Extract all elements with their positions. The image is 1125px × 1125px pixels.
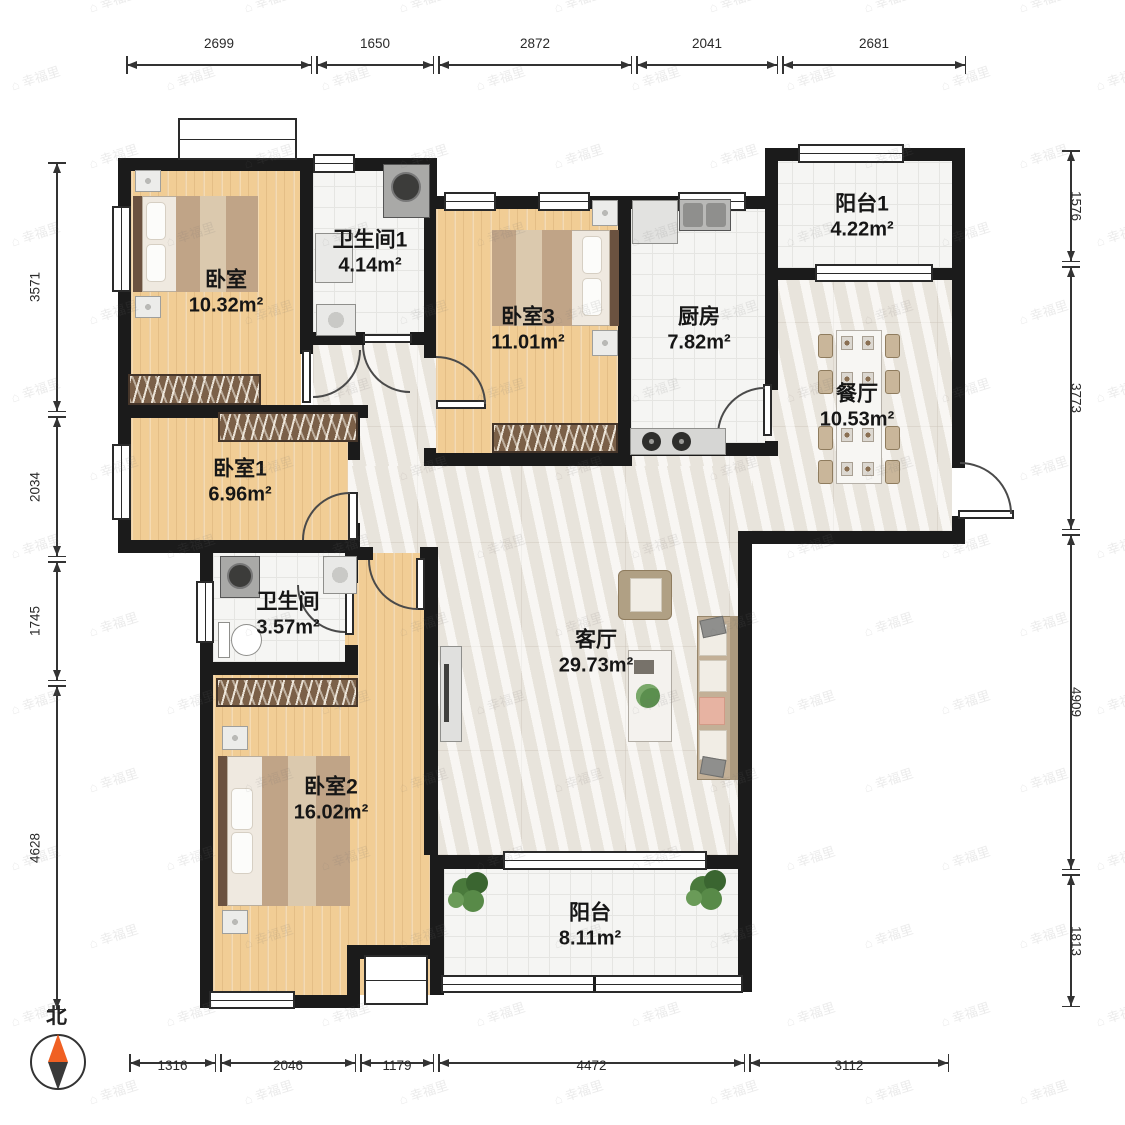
watermark-text: ⌂ 幸福里 [706,0,760,16]
sliding-door-balcony [503,851,707,870]
dimension-value: 2681 [859,36,889,51]
watermark-text: ⌂ 幸福里 [938,997,992,1031]
bed-headboard [133,196,142,292]
room-area: 8.11m² [559,927,621,952]
room-label-bedroom2: 卧室2 16.02m² [294,774,369,825]
armchair-cushion [630,578,662,612]
watermark-text: ⌂ 幸福里 [86,919,140,953]
dimension-left-2: 1745 [48,561,66,681]
wardrobe [216,678,358,707]
dimension-value: 4628 [28,832,43,862]
room-name: 厨房 [667,304,730,330]
room-area: 6.96m² [208,483,271,508]
watermark-text: ⌂ 幸福里 [783,841,837,875]
dimension-bottom-3: 4472 [438,1054,745,1072]
pillow [146,202,166,240]
window [112,206,131,292]
wall [738,531,752,992]
watermark-text: ⌂ 幸福里 [8,61,62,95]
room-name: 餐厅 [820,381,895,407]
dimension-top-0: 2699 [126,56,312,74]
watermark-text: ⌂ 幸福里 [1093,373,1125,407]
dimension-top-4: 2681 [782,56,966,74]
room-name: 卧室1 [208,456,271,482]
room-area: 29.73m² [559,654,634,679]
window [313,154,355,173]
watermark-text: ⌂ 幸福里 [938,841,992,875]
wall [618,196,631,466]
watermark-text: ⌂ 幸福里 [861,1075,915,1109]
dimension-right-1: 3773 [1062,266,1080,530]
bathroom1-door-leaf [363,334,412,343]
watermark-text: ⌂ 幸福里 [86,607,140,641]
watermark-text: ⌂ 幸福里 [861,607,915,641]
window [798,144,904,163]
wardrobe [218,412,358,442]
watermark-text: ⌂ 幸福里 [783,685,837,719]
toilet-tank [218,622,230,658]
wall [424,209,436,358]
nightstand [592,330,618,356]
room-name: 阳台 [559,900,621,926]
room-label-bedroom1: 卧室1 6.96m² [208,456,271,507]
wall [424,453,632,466]
window [538,192,590,211]
wardrobe [492,423,618,453]
dimension-value: 3571 [28,272,43,302]
pillow [231,832,253,874]
book [634,660,654,674]
room-label-balcony: 阳台 8.11m² [559,900,621,951]
watermark-text: ⌂ 幸福里 [706,139,760,173]
watermark-text: ⌂ 幸福里 [86,0,140,16]
wall [738,531,965,544]
dimension-value: 2034 [28,471,43,501]
dimension-bottom-0: 1316 [129,1054,216,1072]
room-area: 10.53m² [820,408,895,433]
pillow [582,278,602,316]
place-setting [862,462,874,476]
room-label-bedroom: 卧室 10.32m² [189,267,264,318]
room-name: 阳台1 [830,191,893,217]
watermark-text: ⌂ 幸福里 [1093,685,1125,719]
room-label-kitchen: 厨房 7.82m² [667,304,730,355]
room-label-balcony1: 阳台1 4.22m² [830,191,893,242]
dining-chair [818,334,833,358]
sliding-door-balcony1 [815,264,933,282]
dimension-right-2: 4909 [1062,534,1080,870]
room-label-living: 客厅 29.73m² [559,627,634,678]
bay-window [178,118,297,160]
dimension-value: 1813 [1069,925,1084,955]
dimension-value: 1316 [157,1058,187,1073]
bedroom-door-leaf [302,350,311,403]
pillow [146,244,166,282]
bed-headboard [610,230,619,326]
dimension-value: 2872 [520,36,550,51]
entry-door-arc [960,462,1012,514]
watermark-text: ⌂ 幸福里 [628,997,682,1031]
watermark-text: ⌂ 幸福里 [1093,61,1125,95]
watermark-text: ⌂ 幸福里 [396,0,450,16]
floor-plan: 卧室 10.32m² 卫生间1 4.14m² 卧室3 11.01m² 厨房 7.… [0,0,1125,1125]
room-name: 卧室3 [491,304,564,330]
watermark-text: ⌂ 幸福里 [1093,529,1125,563]
wall [430,855,444,995]
watermark-text: ⌂ 幸福里 [706,1075,760,1109]
room-area: 16.02m² [294,801,369,826]
bed-headboard [218,756,227,906]
dimension-bottom-1: 2046 [220,1054,356,1072]
sink [316,304,356,336]
watermark-text: ⌂ 幸福里 [86,763,140,797]
watermark-text: ⌂ 幸福里 [938,685,992,719]
sink-basin [706,203,726,227]
washing-machine-drum [391,172,421,202]
wall [765,441,778,456]
room-area: 7.82m² [667,331,730,356]
watermark-text: ⌂ 幸福里 [241,0,295,16]
dining-chair [885,334,900,358]
wall [355,547,373,560]
sofa-cushion [699,660,727,692]
nightstand [222,910,248,934]
dimension-value: 4909 [1069,687,1084,717]
dimension-value: 4472 [576,1058,606,1073]
dimension-top-1: 1650 [316,56,434,74]
window [209,991,295,1009]
room-area: 4.22m² [830,218,893,243]
dimension-value: 1179 [382,1058,411,1073]
dining-chair [818,460,833,484]
balcony-railing [441,975,743,993]
wall [347,945,360,1008]
plant [448,870,492,914]
watermark-text: ⌂ 幸福里 [396,1075,450,1109]
window [112,444,131,520]
nightstand [592,200,618,226]
room-area: 3.57m² [256,616,319,641]
dimension-value: 2041 [692,36,722,51]
plant [686,868,730,912]
room-area: 10.32m² [189,294,264,319]
watermark-text: ⌂ 幸福里 [241,1075,295,1109]
pillow [231,788,253,830]
stove-burner [642,432,661,451]
room-name: 卧室 [189,267,264,293]
dimension-value: 2699 [204,36,234,51]
nightstand [135,296,161,318]
watermark-text: ⌂ 幸福里 [1016,1075,1070,1109]
room-label-bathroom: 卫生间 3.57m² [256,589,319,640]
watermark-text: ⌂ 幸福里 [86,1075,140,1109]
dimension-bottom-4: 3112 [749,1054,949,1072]
nightstand [135,170,161,192]
watermark-text: ⌂ 幸福里 [1093,217,1125,251]
dimension-bottom-2: 1179 [360,1054,434,1072]
place-setting [862,336,874,350]
watermark-text: ⌂ 幸福里 [551,0,605,16]
washing-machine-drum [227,563,253,589]
room-label-bedroom3: 卧室3 11.01m² [491,304,564,355]
watermark-text: ⌂ 幸福里 [783,997,837,1031]
room-name: 卧室2 [294,774,369,800]
watermark-text: ⌂ 幸福里 [1093,997,1125,1031]
wall [952,148,965,468]
sofa-pillow-gray [700,756,727,778]
stove-burner [672,432,691,451]
wall [765,148,778,278]
watermark-text: ⌂ 幸福里 [861,0,915,16]
room-area: 11.01m² [491,331,564,356]
watermark-text: ⌂ 幸福里 [473,997,527,1031]
sofa-pillow-pink [699,697,725,725]
tv [444,664,449,722]
room-name: 卫生间 [256,589,319,615]
wall [200,662,358,675]
bay-window-small [364,955,428,1005]
sink [323,556,357,594]
room-label-bathroom1: 卫生间1 4.14m² [333,227,408,278]
railing-post [593,977,596,991]
place-setting [841,336,853,350]
watermark-text: ⌂ 幸福里 [551,1075,605,1109]
watermark-text: ⌂ 幸福里 [1093,841,1125,875]
sofa-backrest [730,616,738,780]
dimension-value: 3112 [834,1058,863,1073]
room-name: 卫生间1 [333,227,408,253]
dimension-value: 1745 [28,606,43,636]
pillow [582,236,602,274]
dimension-left-0: 3571 [48,162,66,412]
room-label-dining: 餐厅 10.53m² [820,381,895,432]
nightstand [222,726,248,750]
dimension-right-0: 1576 [1062,150,1080,262]
dimension-left-1: 2034 [48,416,66,557]
dimension-value: 3773 [1069,383,1084,413]
dimension-right-3: 1813 [1062,874,1080,1007]
north-label: 北 [46,1000,67,1030]
wall [118,540,360,553]
watermark-text: ⌂ 幸福里 [1016,0,1070,16]
dining-chair [885,460,900,484]
dimension-value: 1650 [360,36,390,51]
dimension-value: 1576 [1069,191,1084,221]
dimension-value: 2046 [273,1058,303,1073]
watermark-text: ⌂ 幸福里 [551,139,605,173]
table-plant [636,684,660,708]
wall [300,158,313,354]
sink-basin [683,203,703,227]
window [444,192,496,211]
window [196,581,214,643]
kitchen-counter [632,200,678,244]
place-setting [841,462,853,476]
compass-icon [28,1028,88,1096]
dimension-top-2: 2872 [438,56,632,74]
wall [765,278,778,390]
watermark-text: ⌂ 幸福里 [861,763,915,797]
wall [424,553,438,855]
room-area: 4.14m² [333,254,408,279]
room-name: 客厅 [559,627,634,653]
wardrobe [128,374,261,405]
dimension-top-3: 2041 [636,56,778,74]
dimension-left-3: 4628 [48,685,66,1010]
watermark-text: ⌂ 幸福里 [861,919,915,953]
